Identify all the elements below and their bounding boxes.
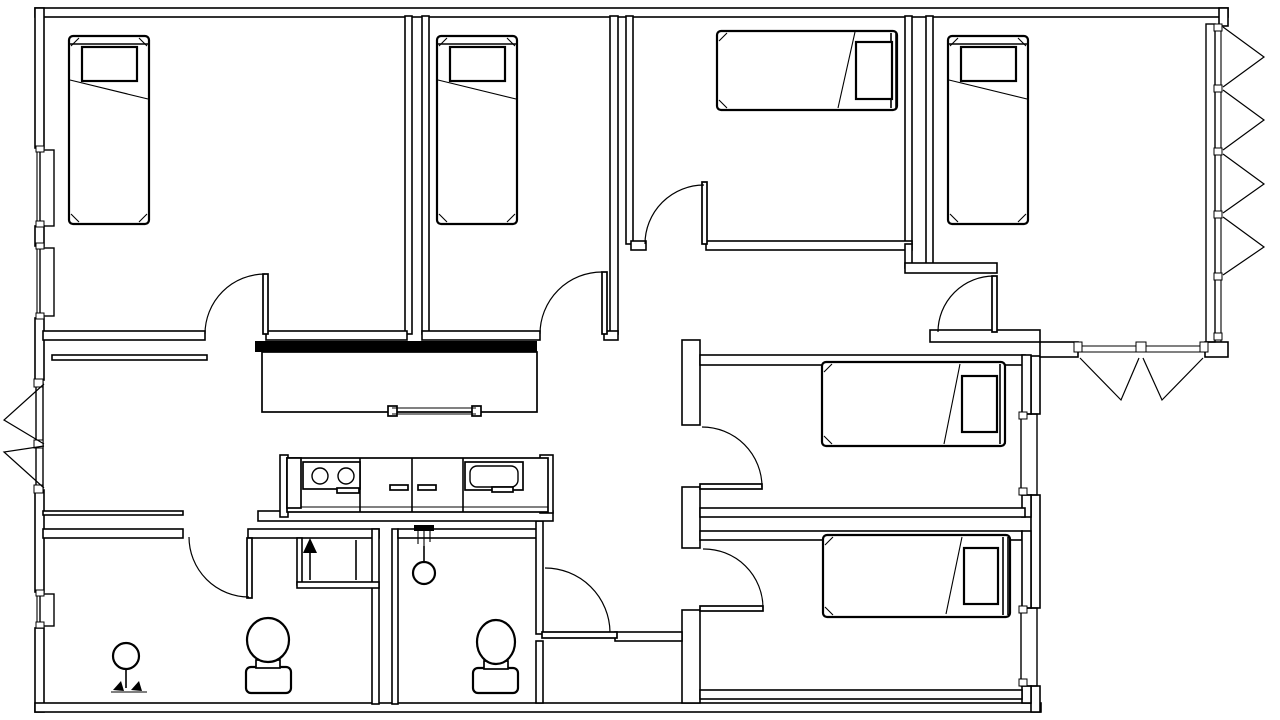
wall-exterior-left-c xyxy=(35,318,44,380)
door-swing-bedroom6 xyxy=(703,549,763,608)
door-swing-bedroom5 xyxy=(702,427,762,487)
window-hinge-b6a xyxy=(1019,606,1027,613)
wall-exterior-right-lower-c xyxy=(1031,686,1040,712)
shower2-mixer xyxy=(414,525,434,531)
door-leaf-bedroom6 xyxy=(700,606,763,611)
wall-exterior-left-e xyxy=(35,628,44,712)
wall-bathroom2-east-a xyxy=(536,521,543,634)
wall-corridor-south xyxy=(615,632,682,641)
bed4-pillow xyxy=(961,47,1016,81)
window-hinge-l2a xyxy=(36,243,44,249)
window-right-band xyxy=(1206,24,1215,342)
right-casement-swing-3 xyxy=(1223,154,1264,213)
bed6-pillow xyxy=(964,548,998,604)
shower2-head xyxy=(413,562,435,584)
french-door-swing-left xyxy=(1080,358,1139,400)
door-leaf-bathroom1 xyxy=(247,538,252,598)
wall-bedroom5-south xyxy=(700,508,1025,517)
toilet1-bowl xyxy=(247,618,289,662)
french-door-swing-right xyxy=(1143,358,1203,400)
door-leaf-bedroom4 xyxy=(992,276,997,332)
wall-bedroom2-right xyxy=(610,16,618,334)
window-left-1 xyxy=(40,150,54,226)
window-hinge-b5a xyxy=(1019,412,1027,419)
wall-bedroom5-east-a xyxy=(1022,355,1031,414)
closet-arrow-head xyxy=(303,538,317,553)
window-hinge-r1 xyxy=(1214,24,1222,31)
shower1-head xyxy=(113,643,139,669)
entry-casement-swing-bottom xyxy=(4,446,44,488)
wall-bedroom2-left xyxy=(422,16,429,334)
wall-bedroom3-south-b xyxy=(706,241,912,250)
wall-hallway-south-edge xyxy=(43,511,183,515)
upper-counter xyxy=(262,352,537,412)
wall-spine-c xyxy=(422,331,540,340)
wall-bedroom3-left xyxy=(626,16,633,244)
door-swing-bathroom1 xyxy=(189,537,249,597)
window-bedroom6 xyxy=(1021,608,1037,686)
wall-french-door-left xyxy=(1040,342,1078,357)
floor-plan-canvas xyxy=(0,0,1280,720)
toilet2-bowl xyxy=(477,620,515,664)
door-swing-bedroom1 xyxy=(205,274,265,334)
wall-exterior-left-d xyxy=(35,490,44,592)
wall-bathroom2-east-b xyxy=(536,641,543,703)
door-swing-bedroom4 xyxy=(938,276,994,332)
kitchen-sink-handle xyxy=(492,487,513,492)
wall-bedroom6-east-b xyxy=(1022,686,1031,703)
window-hinge-l1a xyxy=(36,146,44,152)
toilet2-tank xyxy=(473,668,518,693)
window-hinge-b6b xyxy=(1019,679,1027,686)
right-casement-swing-1 xyxy=(1223,27,1264,87)
right-casement-swing-4 xyxy=(1223,217,1264,275)
door-leaf-bedroom1 xyxy=(263,274,268,334)
door-leaf-corridor xyxy=(542,632,617,638)
wall-hallway-north-edge xyxy=(52,355,207,360)
window-hinge-r2 xyxy=(1214,85,1222,92)
wall-bathroom1-east xyxy=(372,529,379,704)
window-left-3 xyxy=(40,594,54,626)
entry-casement-swing-top xyxy=(4,384,44,444)
window-hinge-l1b xyxy=(36,221,44,227)
window-hinge-r6 xyxy=(1214,333,1222,340)
wall-bedroom6-south xyxy=(700,690,1022,699)
wall-bedroom6-east-a xyxy=(1022,531,1031,608)
wall-bedroom4-south-stub xyxy=(905,263,997,273)
wall-bedroom4-left xyxy=(926,16,933,265)
toilet1-tank xyxy=(246,667,291,693)
window-hinge-l3a xyxy=(36,590,44,596)
wall-bathroom1-north-b xyxy=(248,529,379,538)
door-leaf-bedroom3 xyxy=(702,182,707,244)
window-hinge-r3 xyxy=(1214,148,1222,155)
counter-handle-1 xyxy=(390,485,408,490)
window-hinge-b5b xyxy=(1019,488,1027,495)
wall-corridor-a xyxy=(682,340,700,425)
bed1-pillow xyxy=(82,47,137,81)
wall-spine-right xyxy=(930,330,1040,342)
counter-handle-2 xyxy=(418,485,436,490)
wall-exterior-right-lower-b xyxy=(1031,495,1040,608)
window-hinge-l3b xyxy=(36,622,44,628)
door-leaf-bedroom2 xyxy=(602,272,607,334)
wall-exterior-bottom xyxy=(35,703,1041,712)
right-casement-swing-2 xyxy=(1223,90,1264,150)
door-swing-bedroom2 xyxy=(540,272,602,334)
wall-spine-a xyxy=(43,331,205,340)
wall-bedroom3-south-a xyxy=(631,241,646,250)
window-hinge-r5 xyxy=(1214,273,1222,280)
window-hinge-l2b xyxy=(36,313,44,319)
kitchen-cabinet-left xyxy=(287,458,301,508)
french-hinge-mid xyxy=(1136,342,1146,352)
wall-corridor-c xyxy=(682,610,700,703)
stove-handle xyxy=(337,488,359,493)
shower1-valve-right xyxy=(131,681,142,691)
window-bedroom5 xyxy=(1021,414,1037,495)
wall-exterior-right-lower-a xyxy=(1031,356,1040,414)
wall-closet-bottom xyxy=(297,582,379,588)
window-hinge-r4 xyxy=(1214,211,1222,218)
entry-door-frame xyxy=(36,382,43,488)
wall-right-top-cap xyxy=(1219,8,1228,26)
wall-exterior-left-a xyxy=(35,8,44,148)
door-swing-corridor xyxy=(545,568,610,632)
bed3-pillow xyxy=(856,42,892,99)
door-leaf-bedroom5 xyxy=(700,484,762,489)
wall-bathroom2-west xyxy=(392,529,398,704)
floor-plan-page xyxy=(0,0,1280,720)
french-hinge-left xyxy=(1074,342,1082,352)
wall-kitchen-north-band xyxy=(255,341,537,352)
wall-spine-b xyxy=(266,331,407,340)
shower1-valve-left xyxy=(113,681,124,691)
bed5-pillow xyxy=(962,376,997,432)
wall-bedroom3-right xyxy=(905,16,912,244)
door-swing-bedroom3 xyxy=(645,185,704,244)
wall-corridor-b xyxy=(682,487,700,548)
wall-closet-left xyxy=(297,538,302,585)
french-hinge-right xyxy=(1200,342,1208,352)
wall-bathroom1-north-a xyxy=(43,529,183,538)
window-left-2 xyxy=(40,248,54,316)
wall-bedroom1-right xyxy=(405,16,412,334)
bed2-pillow xyxy=(450,47,505,81)
